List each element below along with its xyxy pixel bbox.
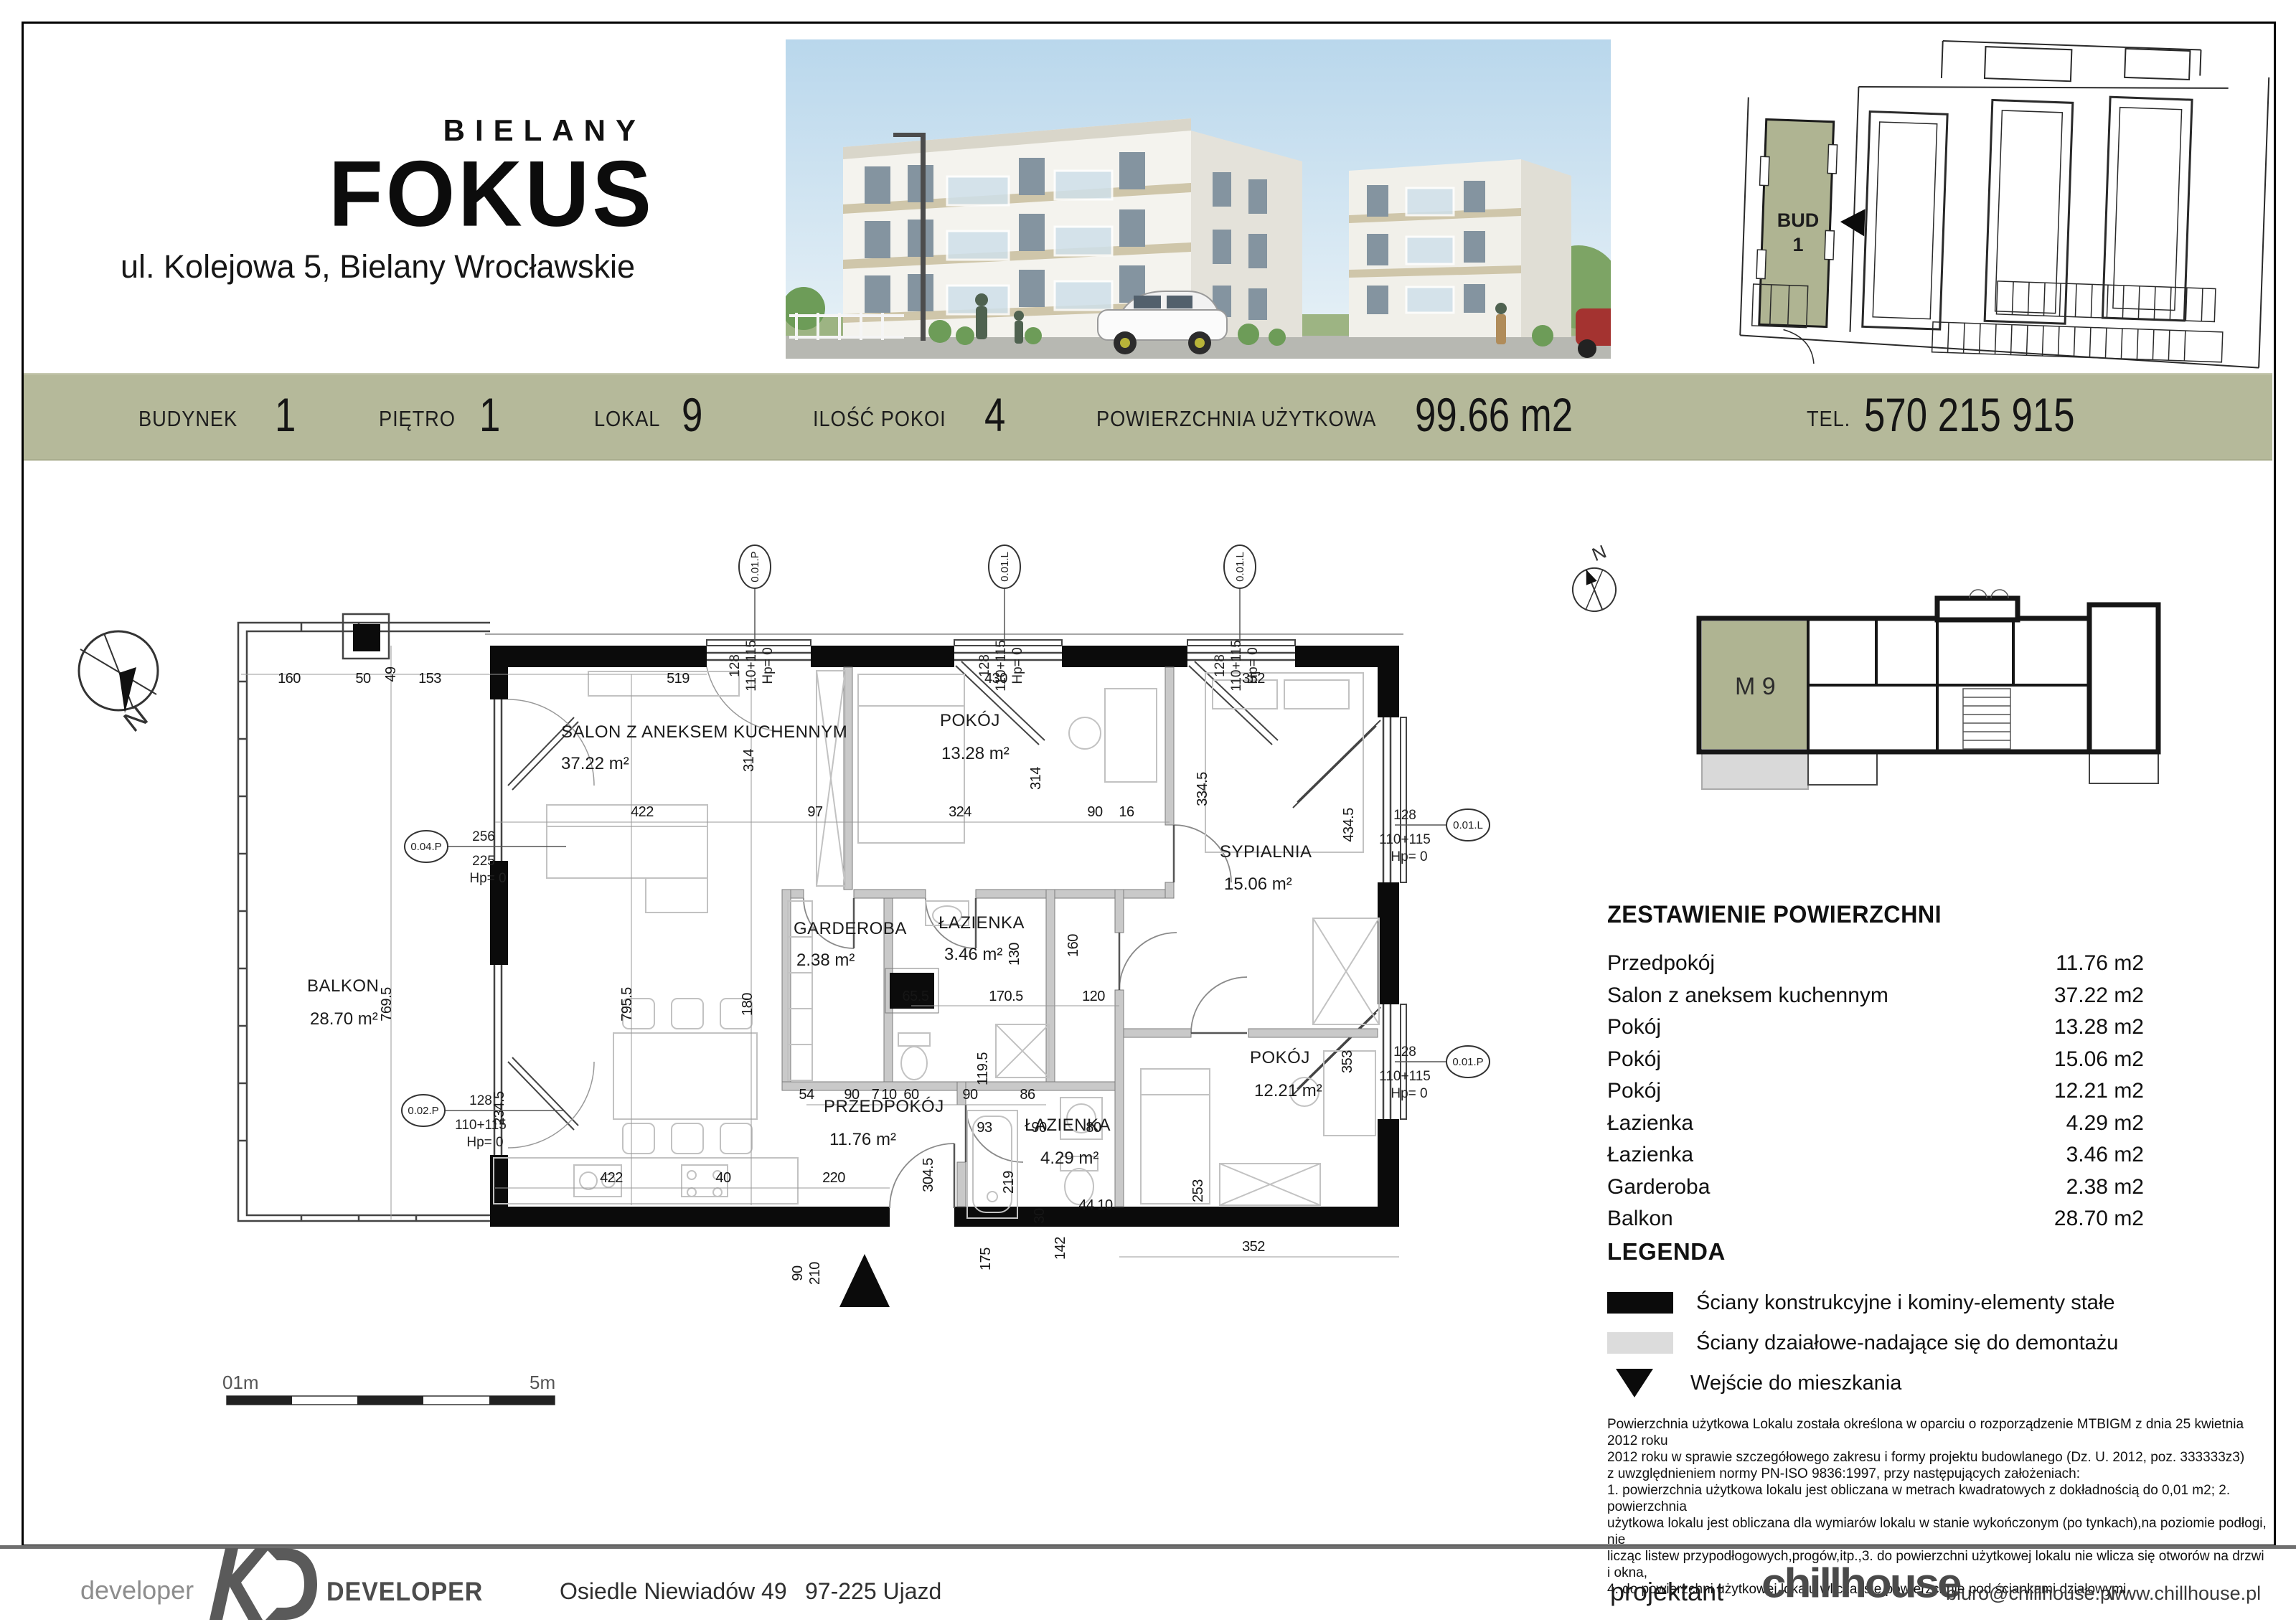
stat-value-budynek: 1 bbox=[275, 387, 296, 442]
designer-prefix: projektant bbox=[1610, 1577, 1723, 1607]
legend-item-label: Ściany konstrukcyjne i kominy-elementy s… bbox=[1696, 1291, 2114, 1315]
areas-table-row: Łazienka4.29 m2 bbox=[1607, 1108, 2144, 1140]
stat-value-tel: 570 215 915 bbox=[1864, 387, 2075, 442]
room-name: Łazienka bbox=[1607, 1108, 1693, 1140]
areas-table-row: Balkon28.70 m2 bbox=[1607, 1203, 2144, 1235]
legend-item-label: Wejście do mieszkania bbox=[1690, 1372, 1901, 1395]
room-name: Garderoba bbox=[1607, 1171, 1710, 1204]
room-area-value: 3.46 m2 bbox=[2066, 1139, 2144, 1171]
legend: LEGENDA Ściany konstrukcyjne i kominy-el… bbox=[1607, 1238, 2167, 1403]
designer-website: www.chillhouse.pl bbox=[2108, 1583, 2261, 1605]
stat-label-pietro: PIĘTRO bbox=[379, 406, 456, 432]
room-area-value: 13.28 m2 bbox=[2054, 1012, 2144, 1044]
areas-table-row: Garderoba2.38 m2 bbox=[1607, 1171, 2144, 1204]
kd-developer-logo bbox=[210, 1548, 317, 1620]
areas-table-row: Łazienka3.46 m2 bbox=[1607, 1139, 2144, 1171]
developer-prefix: developer bbox=[80, 1575, 194, 1606]
legend-item-demountable: Ściany dzaiałowe-nadające się do demonta… bbox=[1607, 1323, 2167, 1363]
stat-value-lokal: 9 bbox=[682, 387, 702, 442]
stat-label-tel: TEL. bbox=[1807, 406, 1850, 432]
room-area-value: 15.06 m2 bbox=[2054, 1044, 2144, 1076]
room-area-value: 4.29 m2 bbox=[2066, 1108, 2144, 1140]
entrance-triangle-swatch bbox=[1616, 1369, 1653, 1397]
room-name: Balkon bbox=[1607, 1203, 1673, 1235]
stat-label-pokoi: ILOŚĆ POKOI bbox=[813, 406, 946, 432]
demountable-wall-swatch bbox=[1607, 1332, 1673, 1354]
room-name: Pokój bbox=[1607, 1075, 1661, 1108]
areas-table-row: Przedpokój11.76 m2 bbox=[1607, 948, 2144, 980]
developer-name: DEVELOPER bbox=[326, 1577, 483, 1607]
areas-table-rows: Przedpokój11.76 m2Salon z aneksem kuchen… bbox=[1607, 948, 2144, 1235]
room-area-value: 11.76 m2 bbox=[2056, 948, 2144, 980]
room-name: Pokój bbox=[1607, 1012, 1661, 1044]
room-area-value: 28.70 m2 bbox=[2054, 1203, 2144, 1235]
room-area-value: 12.21 m2 bbox=[2054, 1075, 2144, 1108]
developer-address-city: 97-225 Ujazd bbox=[805, 1578, 941, 1605]
stat-label-budynek: BUDYNEK bbox=[138, 406, 237, 432]
areas-table-row: Pokój12.21 m2 bbox=[1607, 1075, 2144, 1108]
legend-item-structural: Ściany konstrukcyjne i kominy-elementy s… bbox=[1607, 1283, 2167, 1323]
areas-table-row: Pokój15.06 m2 bbox=[1607, 1044, 2144, 1076]
areas-table-title: ZESTAWIENIE POWIERZCHNI bbox=[1607, 901, 2117, 929]
room-name: Łazienka bbox=[1607, 1139, 1693, 1171]
legend-item-entrance: Wejście do mieszkania bbox=[1607, 1363, 2167, 1403]
stat-value-powierzchnia: 99.66 m2 bbox=[1415, 387, 1573, 442]
room-name: Przedpokój bbox=[1607, 948, 1715, 980]
footer-divider bbox=[0, 1545, 2296, 1549]
legend-title: LEGENDA bbox=[1607, 1238, 2167, 1265]
brand-logo-fokus: FOKUS bbox=[326, 141, 657, 247]
legend-item-label: Ściany dzaiałowe-nadające się do demonta… bbox=[1696, 1331, 2118, 1355]
areas-table-row: Pokój13.28 m2 bbox=[1607, 1012, 2144, 1044]
stat-value-pietro: 1 bbox=[479, 387, 500, 442]
structural-wall-swatch bbox=[1607, 1292, 1673, 1314]
stat-label-powierzchnia: POWIERZCHNIA UŻYTKOWA bbox=[1096, 406, 1376, 432]
room-name: Pokój bbox=[1607, 1044, 1661, 1076]
stat-value-pokoi: 4 bbox=[984, 387, 1005, 442]
room-area-value: 37.22 m2 bbox=[2054, 980, 2144, 1012]
developer-address-street: Osiedle Niewiadów 49 bbox=[560, 1578, 787, 1605]
designer-email: biuro@chillhouse.pl bbox=[1946, 1583, 2115, 1605]
areas-table-row: Salon z aneksem kuchennym37.22 m2 bbox=[1607, 980, 2144, 1012]
stat-label-lokal: LOKAL bbox=[594, 406, 660, 432]
chillhouse-logo: chillhouse bbox=[1761, 1560, 1960, 1607]
project-address: ul. Kolejowa 5, Bielany Wrocławskie bbox=[121, 248, 723, 286]
room-area-value: 2.38 m2 bbox=[2066, 1171, 2144, 1204]
areas-table: ZESTAWIENIE POWIERZCHNI Przedpokój11.76 … bbox=[1607, 901, 2144, 1235]
room-name: Salon z aneksem kuchennym bbox=[1607, 980, 1888, 1012]
